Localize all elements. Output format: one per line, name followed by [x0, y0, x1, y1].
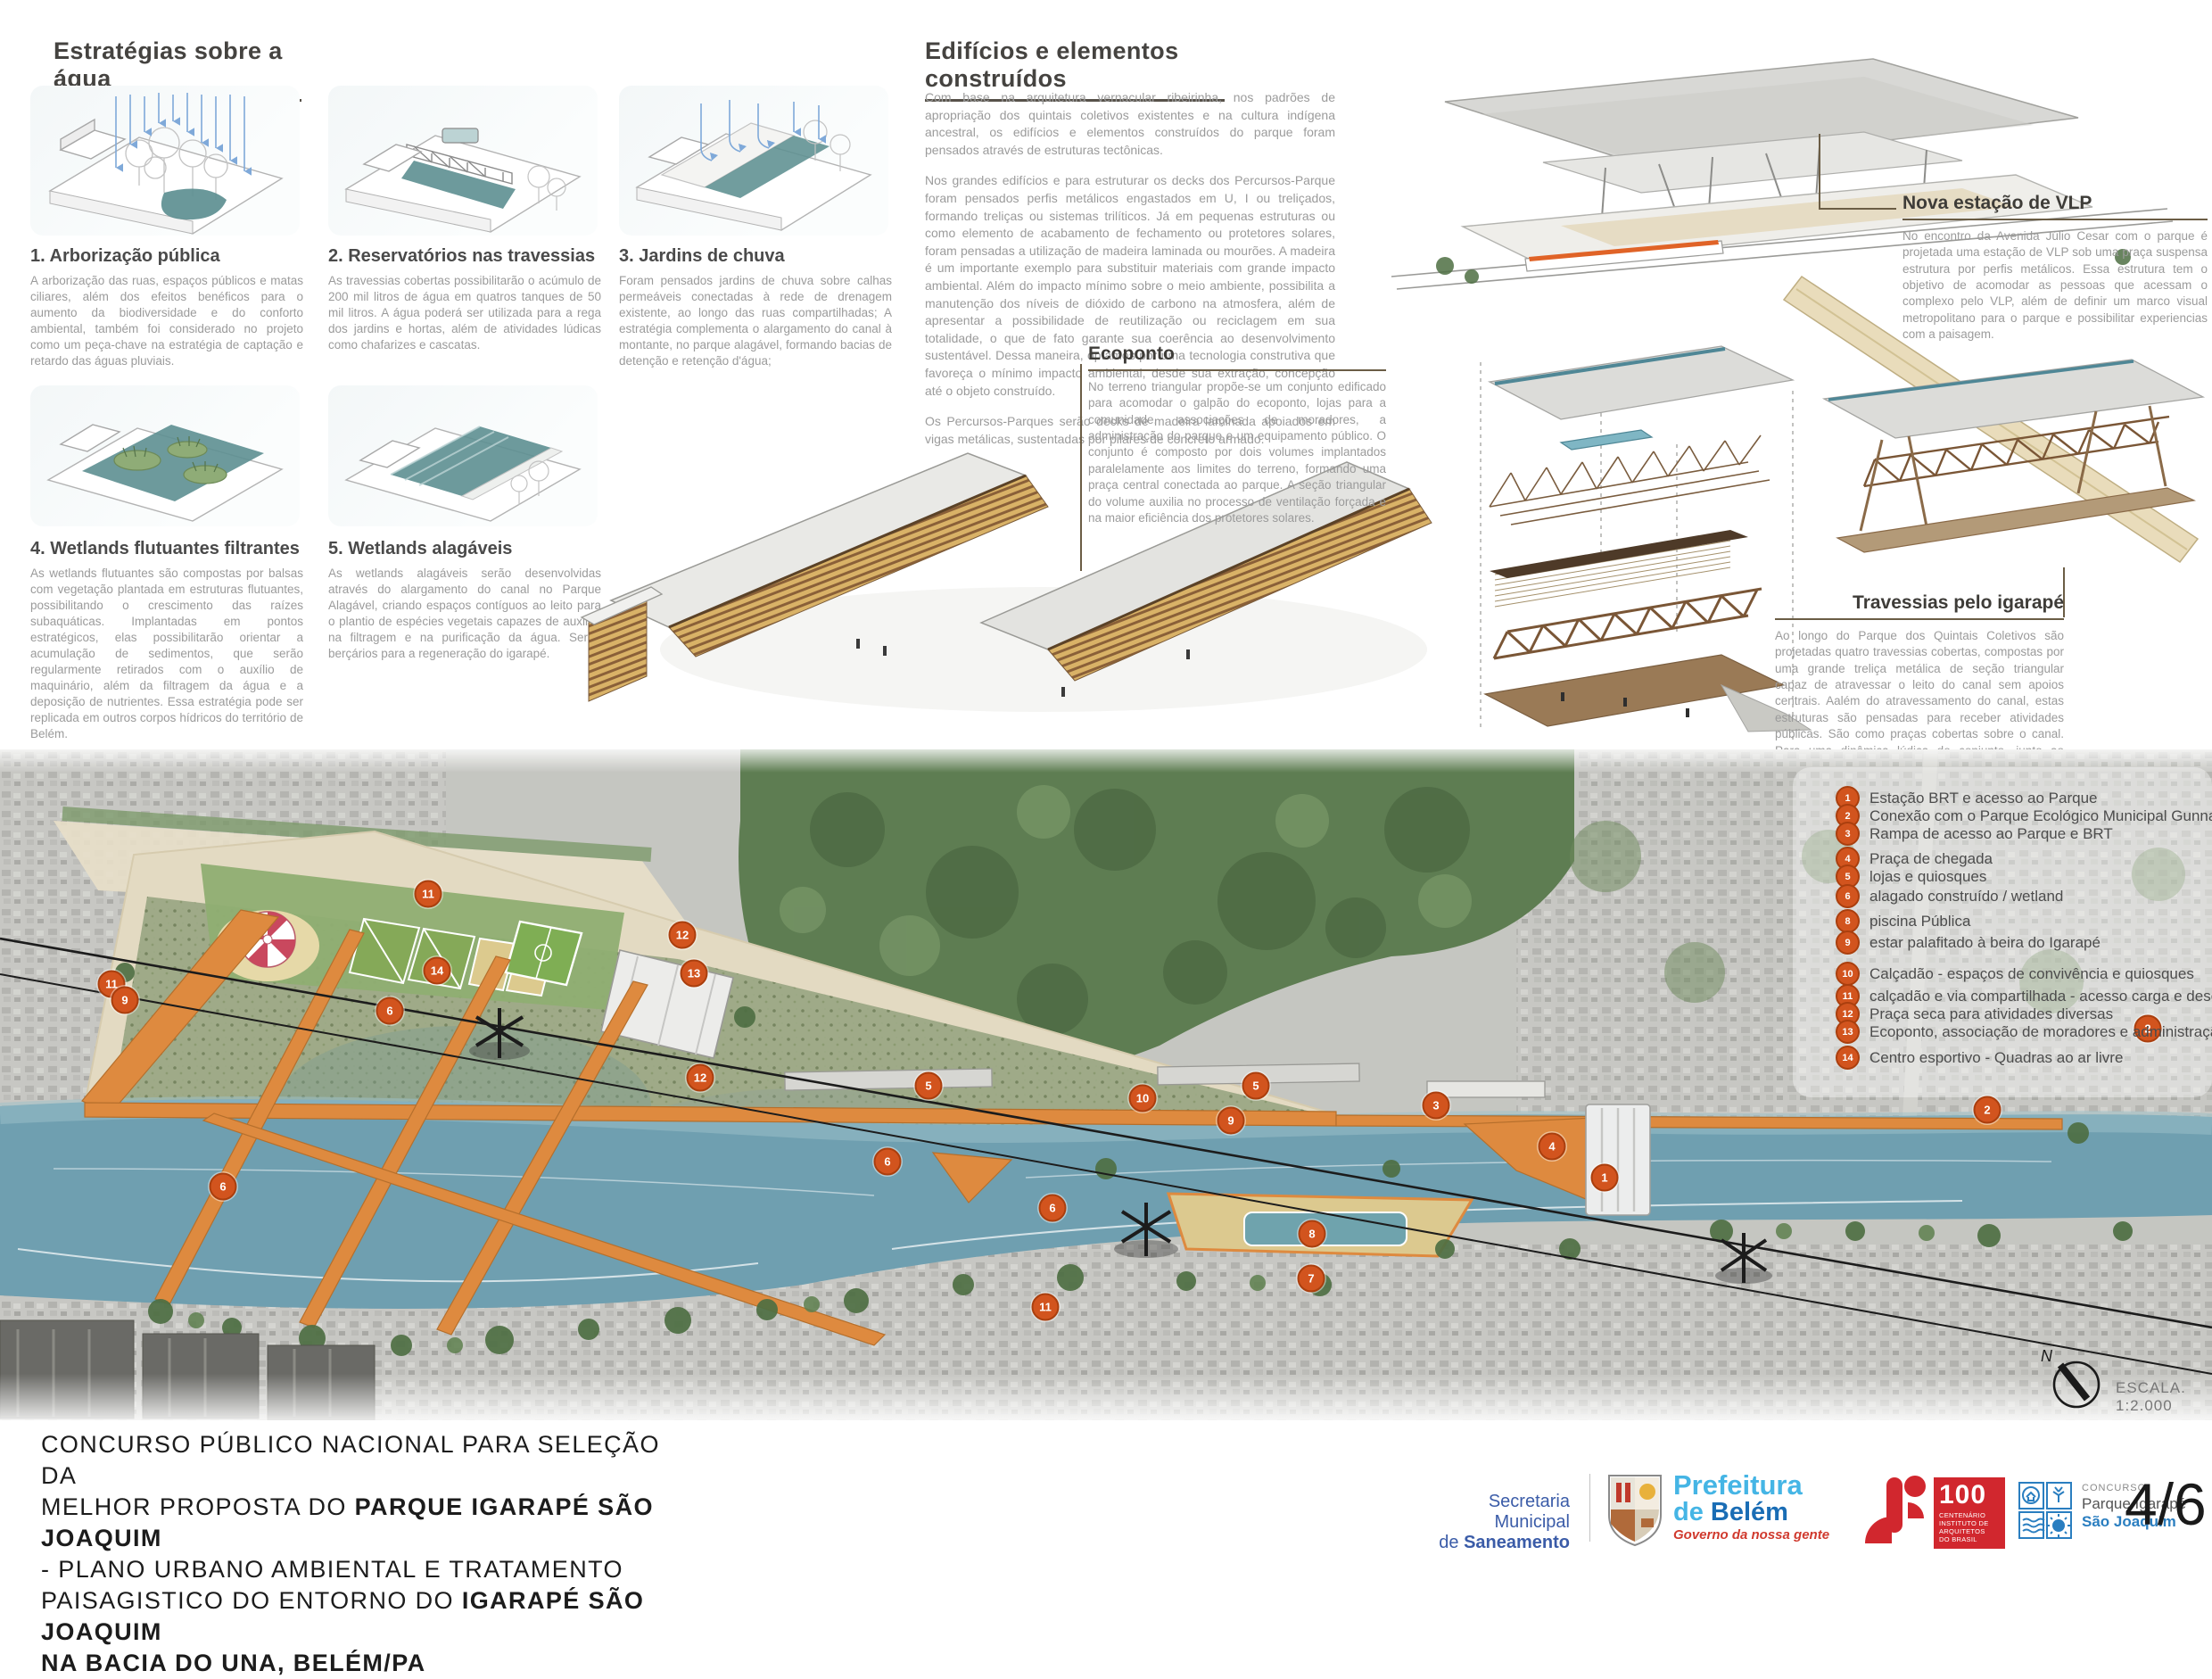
- board-title-line: - PLANO URBANO AMBIENTAL E TRATAMENTO: [41, 1554, 683, 1585]
- ecoponto-callout-text: No terreno triangular propõe-se um conju…: [1088, 379, 1386, 526]
- legend-badge: 3: [1836, 822, 1860, 846]
- legend-label: alagado construído / wetland: [1869, 888, 2063, 906]
- belem-coat-of-arms-icon: [1605, 1472, 1664, 1547]
- strategy-4-text: As wetlands flutuantes são compostas por…: [30, 566, 303, 741]
- centenario-caption: CENTENÁRIOINSTITUTO DEARQUITETOSDO BRASI…: [1939, 1511, 1989, 1543]
- built-paragraph-1: Com base na arquitetura vernacular ribei…: [925, 89, 1335, 159]
- map-marker-12: 12: [669, 922, 697, 949]
- map-marker-11: 11: [1032, 1294, 1060, 1321]
- legend-label: Centro esportivo - Quadras ao ar livre: [1869, 1049, 2123, 1067]
- vlp-callout: Nova estação de VLP No encontro da Aveni…: [1902, 193, 2208, 343]
- legend-label: piscina Pública: [1869, 913, 1970, 930]
- strategy-2-block: 2. Reservatórios nas travessias As trave…: [328, 246, 601, 353]
- strategy-4-illustration: [30, 385, 300, 526]
- legend-label: Ecoponto, associação de moradores e admi…: [1869, 1023, 2212, 1041]
- legend-item-10: 10Calçadão - espaços de convivência e qu…: [1836, 962, 2194, 986]
- legend-label: lojas e quiosques: [1869, 868, 1986, 886]
- north-arrow-icon: N: [2034, 1345, 2114, 1417]
- prefeitura-line2-prefix: de: [1673, 1498, 1711, 1526]
- map-marker-14: 14: [424, 957, 451, 985]
- strategy-2-illustration: [328, 86, 598, 236]
- map-marker-12: 12: [687, 1064, 714, 1092]
- masterplan-aerial-map: 1112141311961266510593412687112 1Estação…: [0, 749, 2212, 1420]
- travessias-callout-title: Travessias pelo igarapé: [1775, 592, 2064, 620]
- legend-badge: 13: [1836, 1020, 1860, 1044]
- legend-badge: 8: [1836, 909, 1860, 933]
- strategy-4-title: 4. Wetlands flutuantes filtrantes: [30, 539, 303, 559]
- travessia-axonometric: [1775, 343, 2212, 611]
- north-scale-group: N ESCALA. 1:2.000: [2034, 1345, 2212, 1417]
- map-marker-10: 10: [1129, 1085, 1157, 1112]
- legend-badge: 14: [1836, 1046, 1860, 1070]
- centenario-number: 100: [1939, 1483, 1986, 1508]
- centenario-100-logo: 100 CENTENÁRIOINSTITUTO DEARQUITETOSDO B…: [1934, 1477, 2005, 1549]
- legend-badge: 9: [1836, 930, 1860, 955]
- vlp-callout-text: No encontro da Avenida Júlio Cesar com o…: [1902, 228, 2208, 343]
- legend-label: Calçadão - espaços de convivência e quio…: [1869, 965, 2194, 983]
- legend-label: estar palafitado à beira do Igarapé: [1869, 934, 2101, 952]
- prefeitura-line2-bold: Belém: [1711, 1498, 1788, 1526]
- ecoponto-callout: Ecoponto No terreno triangular propõe-se…: [1088, 343, 1386, 526]
- strategy-4-block: 4. Wetlands flutuantes filtrantes As wet…: [30, 539, 303, 741]
- strategy-3-title: 3. Jardins de chuva: [619, 246, 892, 267]
- strategy-5-text: As wetlands alagáveis serão desenvolvida…: [328, 566, 601, 662]
- legend-item-6: 6alagado construído / wetland: [1836, 884, 2063, 908]
- strategy-1-illustration: [30, 86, 300, 236]
- legend-badge: 6: [1836, 884, 1860, 908]
- board-title-line: CONCURSO PÚBLICO NACIONAL PARA SELEÇÃO D…: [41, 1429, 683, 1492]
- strategy-3-block: 3. Jardins de chuva Foram pensados jardi…: [619, 246, 892, 369]
- covered-crossing-drawing-icon: [1775, 343, 2212, 611]
- map-marker-11: 11: [415, 881, 442, 908]
- svg-text:N: N: [2041, 1347, 2053, 1365]
- map-marker-6: 6: [376, 997, 404, 1025]
- strategy-3-illustration: [619, 86, 888, 236]
- flooded-wetland-diagram-icon: [328, 385, 598, 526]
- legend-label: Rampa de acesso ao Parque e BRT: [1869, 825, 2113, 843]
- map-marker-7: 7: [1298, 1265, 1325, 1293]
- scale-label: ESCALA. 1:2.000: [2116, 1379, 2212, 1415]
- map-marker-1: 1: [1591, 1164, 1619, 1192]
- strategy-1-title: 1. Arborização pública: [30, 246, 303, 267]
- board-title-line: NA BACIA DO UNA, BELÉM/PA: [41, 1648, 683, 1679]
- exploded-structure-axonometric: [1454, 337, 1820, 752]
- legend-item-14: 14Centro esportivo - Quadras ao ar livre: [1836, 1046, 2123, 1070]
- saneamento-line1: Secretaria Municipal: [1489, 1492, 1570, 1532]
- strategy-5-illustration: [328, 385, 598, 526]
- legend-badge: 10: [1836, 962, 1860, 986]
- legend-item-8: 8piscina Pública: [1836, 909, 1970, 933]
- saneamento-line2-prefix: de: [1439, 1533, 1464, 1552]
- strategy-5-title: 5. Wetlands alagáveis: [328, 539, 601, 559]
- map-legend: 1Estação BRT e acesso ao Parque2Conexão …: [1836, 749, 2210, 1106]
- exploded-layers-drawing-icon: [1454, 337, 1820, 752]
- strategy-5-block: 5. Wetlands alagáveis As wetlands alagáv…: [328, 539, 601, 662]
- board-title-line: MELHOR PROPOSTA DO PARQUE IGARAPÉ SÃO JO…: [41, 1492, 683, 1554]
- map-marker-8: 8: [1299, 1220, 1326, 1248]
- prefeitura-tagline: Governo da nossa gente: [1673, 1527, 1878, 1543]
- board-title: CONCURSO PÚBLICO NACIONAL PARA SELEÇÃO D…: [41, 1429, 683, 1679]
- map-marker-6: 6: [874, 1148, 902, 1176]
- map-marker-5: 5: [1242, 1072, 1270, 1100]
- map-marker-5: 5: [915, 1072, 943, 1100]
- strategy-2-title: 2. Reservatórios nas travessias: [328, 246, 601, 267]
- concurso-logo-icon: [2018, 1481, 2073, 1540]
- prefeitura-logo: Prefeitura de Belém Governo da nossa gen…: [1673, 1472, 1878, 1543]
- logo-divider: [1589, 1474, 1590, 1542]
- legend-item-3: 3Rampa de acesso ao Parque e BRT: [1836, 822, 2113, 846]
- legend-item-13: 13Ecoponto, associação de moradores e ad…: [1836, 1020, 2212, 1044]
- legend-item-9: 9estar palafitado à beira do Igarapé: [1836, 930, 2101, 955]
- floating-wetland-diagram-icon: [30, 385, 300, 526]
- prefeitura-line1: Prefeitura: [1673, 1472, 1878, 1499]
- saneamento-logo: Secretaria Municipal de Saneamento: [1420, 1492, 1570, 1553]
- board-title-line: PAISAGISTICO DO ENTORNO DO IGARAPÉ SÃO J…: [41, 1585, 683, 1648]
- page-number: 4/6: [2125, 1470, 2207, 1538]
- strategy-2-text: As travessias cobertas possibilitarão o …: [328, 273, 601, 353]
- reservoir-crossing-diagram-icon: [328, 86, 598, 236]
- strategy-1-text: A arborização das ruas, espaços públicos…: [30, 273, 303, 369]
- map-marker-4: 4: [1539, 1133, 1566, 1161]
- map-marker-3: 3: [1423, 1092, 1450, 1120]
- vlp-callout-title: Nova estação de VLP: [1902, 193, 2208, 220]
- map-marker-9: 9: [111, 987, 139, 1014]
- map-marker-9: 9: [1217, 1107, 1245, 1135]
- competition-board: { "strategies": { "title": "Estratégias …: [0, 0, 2212, 1564]
- rain-garden-diagram-icon: [619, 86, 888, 236]
- saneamento-line2-bold: Saneamento: [1464, 1533, 1570, 1552]
- map-marker-13: 13: [681, 960, 708, 988]
- tree-rain-diagram-icon: [30, 86, 300, 236]
- ecoponto-callout-title: Ecoponto: [1088, 343, 1386, 371]
- map-marker-6: 6: [1039, 1195, 1067, 1222]
- map-marker-6: 6: [210, 1173, 237, 1201]
- strategy-1-block: 1. Arborização pública A arborização das…: [30, 246, 303, 369]
- iab-logo-icon: [1860, 1472, 1929, 1547]
